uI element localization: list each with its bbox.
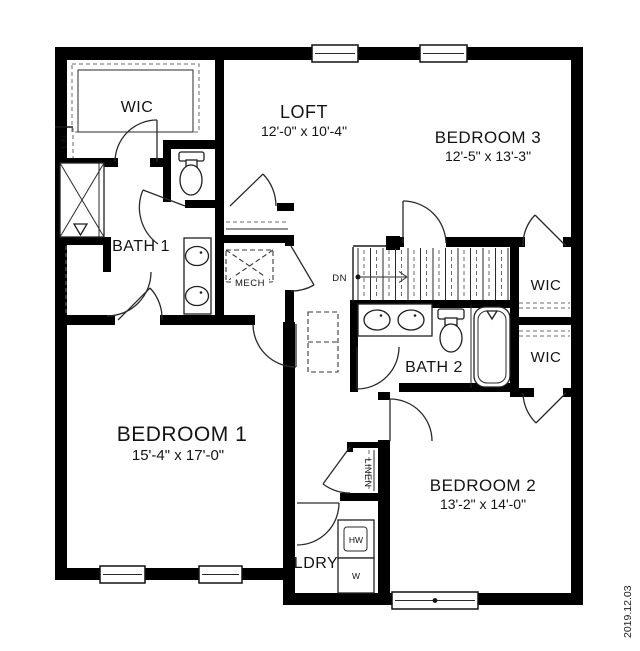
door-bath2-entry [357, 347, 399, 389]
floor-plan-drawing: DN [0, 0, 640, 651]
door-linen [323, 447, 350, 493]
stairs-dn-label: DN [332, 273, 347, 284]
laundry-appliances: HW W [338, 520, 374, 593]
label-bedroom1: BEDROOM 1 [117, 423, 248, 446]
door-wic-upper-left [115, 120, 157, 162]
shower [60, 163, 104, 237]
door-toilet-room [139, 190, 185, 244]
label-loft: LOFT [280, 102, 328, 122]
door-wic-right-bottom [523, 393, 566, 423]
washer-label: W [352, 571, 360, 581]
label-lin-closet: LIN. [60, 134, 69, 149]
toilet-bath1 [179, 152, 204, 195]
stair-treads [358, 248, 508, 300]
door-bath1-entry [118, 288, 162, 320]
window-bedroom2-bottom [392, 592, 478, 609]
window-bedroom3-top [420, 45, 467, 62]
label-wic-right-top: WIC [531, 277, 562, 294]
bath1-fixtures [60, 152, 211, 314]
label-bedroom2: BEDROOM 2 [430, 476, 537, 495]
label-bedroom3: BEDROOM 3 [435, 128, 542, 147]
stair-down-arrow [356, 272, 408, 283]
dims-bedroom3: 12'-5" x 13'-3" [445, 148, 531, 164]
water-heater-label: HW [349, 535, 363, 545]
label-laundry: LDRY [294, 555, 338, 572]
vanity-bath1 [184, 238, 211, 314]
label-wic-upper-left: WIC [121, 99, 154, 116]
bathtub [474, 307, 510, 387]
dims-loft: 12'-0" x 10'-4" [261, 123, 347, 139]
door-loft-closet [230, 174, 276, 206]
window-loft-top [312, 45, 358, 62]
label-bath2: BATH 2 [405, 359, 463, 376]
dims-bedroom1: 15'-4" x 17'-0" [132, 447, 224, 464]
stairs: DN [332, 246, 508, 302]
label-linen: LINEN [363, 458, 373, 487]
washer-box: W [338, 558, 374, 593]
floor-plan: DN [0, 0, 640, 651]
label-wic-right-bottom: WIC [531, 349, 562, 366]
toilet-bath2 [438, 309, 464, 352]
door-bedroom2-entry [390, 399, 432, 441]
window-bedroom1-right [199, 566, 242, 583]
label-mech: MECH [235, 278, 265, 289]
door-bedroom3-entry [403, 201, 446, 243]
vanity-bath2 [358, 304, 432, 336]
label-bath1: BATH 1 [112, 238, 170, 255]
date-stamp: 2019.12.03 [622, 585, 634, 638]
door-wic-right-top [523, 215, 566, 246]
door-laundry [297, 503, 339, 545]
door-mech [291, 246, 314, 291]
dims-bedroom2: 13'-2" x 14'-0" [440, 496, 526, 512]
water-heater-box: HW [338, 520, 374, 558]
window-bedroom1-left [100, 566, 145, 583]
